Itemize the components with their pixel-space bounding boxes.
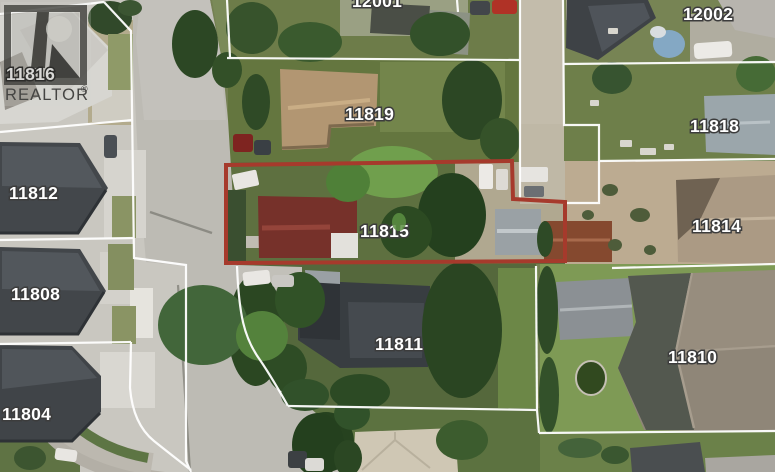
svg-text:11816: 11816 [6,64,55,84]
svg-text:11814: 11814 [692,216,741,236]
svg-text:11808: 11808 [11,284,60,304]
svg-text:11818: 11818 [690,116,739,136]
svg-text:11811: 11811 [375,334,423,354]
svg-text:11804: 11804 [2,404,51,424]
svg-text:REALTOR: REALTOR [5,86,89,104]
svg-text:12002: 12002 [683,4,733,24]
svg-text:12001: 12001 [352,0,402,11]
svg-text:®: ® [81,84,88,94]
svg-text:11812: 11812 [9,183,58,203]
svg-text:11810: 11810 [668,347,717,367]
svg-text:11819: 11819 [345,104,394,124]
